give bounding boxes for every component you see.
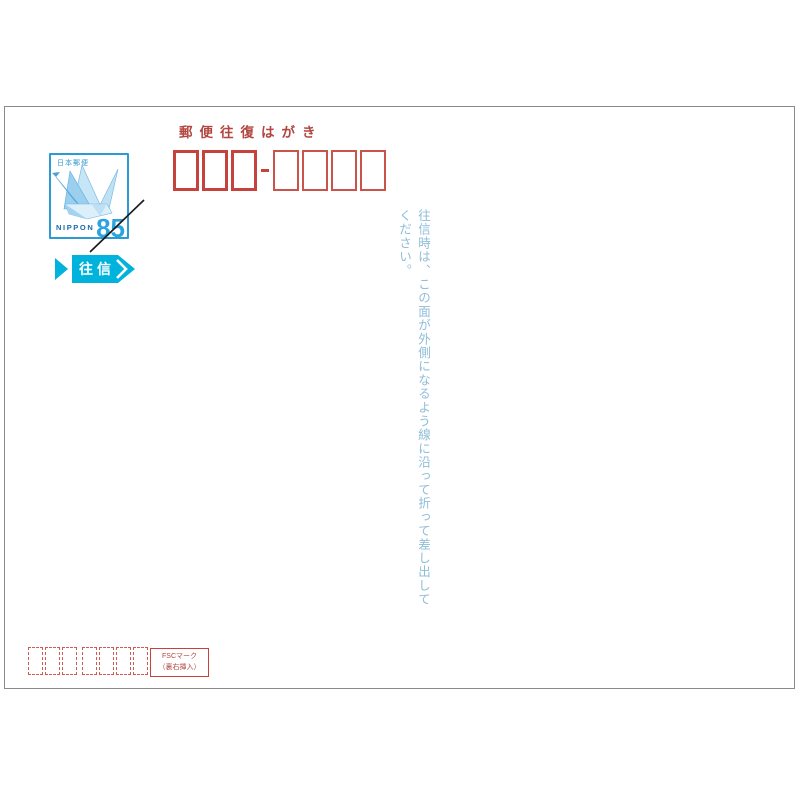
postal-code-box [302,150,328,191]
reverse-code-box [116,647,131,675]
reverse-code-box [28,647,43,675]
card-type-heading: 郵便往復はがき [179,121,323,141]
reverse-code-group-first [28,647,79,675]
page: 日本郵便 NIPPON 85 往信 [0,0,800,800]
reply-postcard-front: 日本郵便 NIPPON 85 往信 [4,106,795,689]
postal-code-box [331,150,357,191]
fsc-note-line2: （裏右挿入） [159,663,201,674]
direction-badge: 往信 [55,255,137,283]
fold-instruction-text: 往信時は、この面が外側になるよう線に沿って折って差し出してください。 [395,209,433,609]
reverse-code-box [99,647,114,675]
fsc-mark-placeholder: FSCマーク （裏右挿入） [150,648,209,677]
fsc-note-line1: FSCマーク [162,652,197,663]
reverse-code-box [133,647,148,675]
stamp-issuer-label: 日本郵便 [57,158,89,168]
postal-code-box [202,150,228,191]
postal-code-box [273,150,299,191]
reverse-code-box [62,647,77,675]
reverse-code-marks [28,647,150,675]
postal-code-boxes [173,150,389,191]
direction-badge-label: 往信 [72,255,118,283]
postal-code-box [360,150,386,191]
stamp-denomination: 85 [96,215,125,241]
postal-code-box [173,150,199,191]
stamp-country-label: NIPPON [56,223,94,232]
postal-code-hyphen [261,169,269,172]
postal-code-group-second [273,150,389,191]
reverse-code-box [82,647,97,675]
reverse-code-group-second [82,647,150,675]
reverse-code-box [45,647,60,675]
postage-stamp: 日本郵便 NIPPON 85 [49,153,129,239]
postal-code-group-first [173,150,260,191]
postal-code-box [231,150,257,191]
